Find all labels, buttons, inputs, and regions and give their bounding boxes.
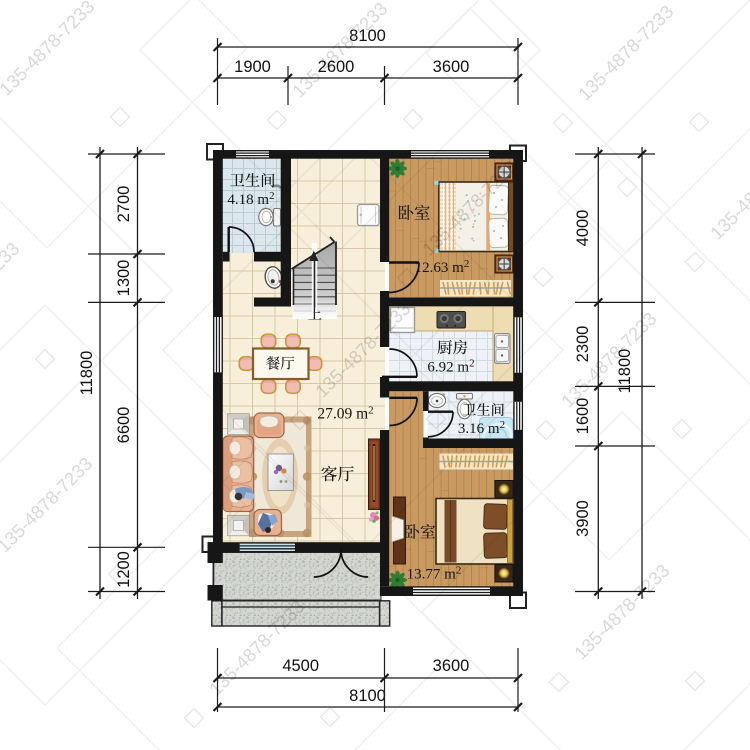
svg-text:27.09 m2: 27.09 m2 <box>317 405 373 423</box>
svg-text:13.77 m2: 13.77 m2 <box>407 565 462 583</box>
svg-text:4000: 4000 <box>574 210 592 247</box>
svg-text:4.18 m2: 4.18 m2 <box>227 190 274 208</box>
svg-text:2300: 2300 <box>574 326 592 363</box>
svg-text:12.63 m2: 12.63 m2 <box>415 258 470 276</box>
svg-text:3900: 3900 <box>574 500 592 537</box>
svg-text:1300: 1300 <box>115 260 133 297</box>
svg-text:1900: 1900 <box>234 58 271 76</box>
svg-text:8100: 8100 <box>349 687 386 705</box>
svg-text:4500: 4500 <box>282 657 319 675</box>
svg-text:3.16 m2: 3.16 m2 <box>458 419 505 437</box>
svg-text:3600: 3600 <box>433 58 470 76</box>
svg-text:11800: 11800 <box>78 351 96 396</box>
svg-text:6600: 6600 <box>115 407 133 444</box>
svg-text:2700: 2700 <box>115 186 133 223</box>
